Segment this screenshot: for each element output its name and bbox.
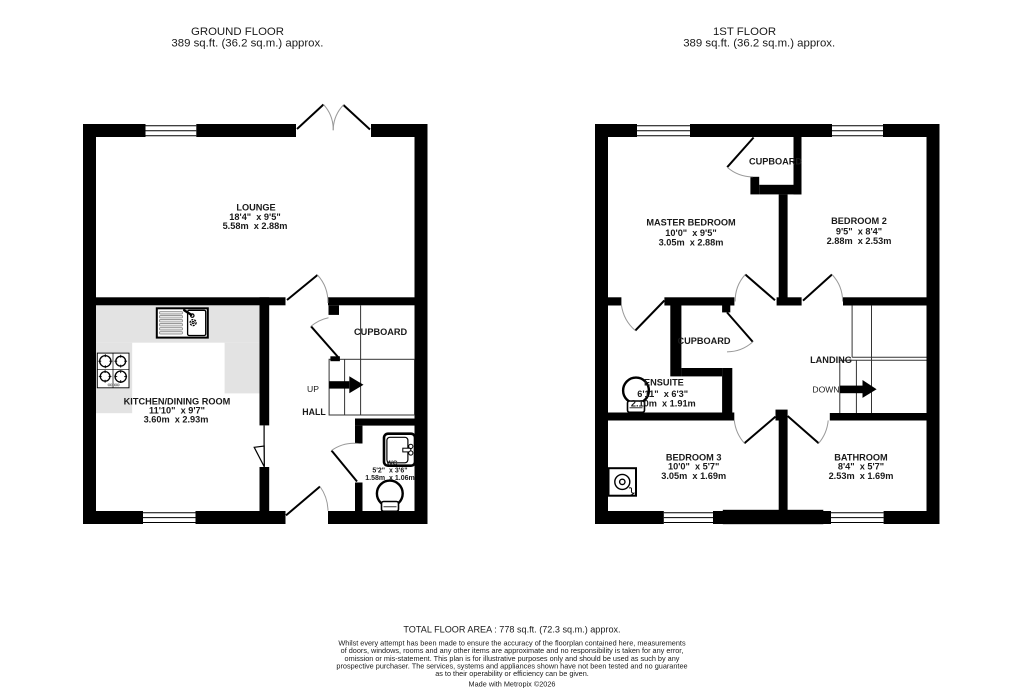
svg-text:CUPBOARD: CUPBOARD (749, 157, 802, 167)
svg-text:6'11" x 6'3": 6'11" x 6'3" (637, 389, 688, 399)
svg-text:TOTAL FLOOR AREA : 778 sq.ft.: TOTAL FLOOR AREA : 778 sq.ft. (72.3 sq.m… (403, 624, 620, 634)
svg-text:UP: UP (307, 384, 319, 394)
svg-text:WC: WC (387, 460, 398, 467)
svg-text:389 sq.ft. (36.2 sq.m.) approx: 389 sq.ft. (36.2 sq.m.) approx. (171, 38, 323, 50)
svg-text:1ST FLOOR: 1ST FLOOR (713, 26, 776, 38)
svg-text:5'2" x 3'6": 5'2" x 3'6" (372, 468, 407, 475)
svg-text:3.05m x 2.88m: 3.05m x 2.88m (659, 238, 724, 248)
svg-text:10'0" x 5'7": 10'0" x 5'7" (668, 462, 719, 472)
svg-text:8'4" x 5'7": 8'4" x 5'7" (838, 462, 884, 472)
svg-text:as to their operability or eff: as to their operability or efficiency ca… (435, 669, 589, 678)
svg-text:CUPBOARD: CUPBOARD (354, 327, 407, 337)
svg-text:DOWN: DOWN (812, 384, 839, 394)
svg-text:9'5" x 8'4": 9'5" x 8'4" (836, 227, 882, 237)
svg-text:389 sq.ft. (36.2 sq.m.) approx: 389 sq.ft. (36.2 sq.m.) approx. (683, 38, 835, 50)
svg-text:MASTER BEDROOM: MASTER BEDROOM (646, 218, 736, 228)
svg-text:Made with Metropix ©2026: Made with Metropix ©2026 (469, 680, 556, 688)
svg-text:BEDROOM 2: BEDROOM 2 (831, 216, 887, 226)
svg-text:HALL: HALL (302, 407, 326, 417)
svg-text:5.58m x 2.88m: 5.58m x 2.88m (223, 221, 288, 231)
svg-text:1.58m x 1.06m: 1.58m x 1.06m (365, 475, 414, 482)
svg-text:10'0" x 9'5": 10'0" x 9'5" (665, 228, 716, 238)
svg-text:GROUND FLOOR: GROUND FLOOR (191, 26, 284, 38)
svg-text:3.60m x 2.93m: 3.60m x 2.93m (144, 415, 209, 425)
svg-text:2.53m x 1.69m: 2.53m x 1.69m (829, 471, 894, 481)
svg-text:3.05m x 1.69m: 3.05m x 1.69m (661, 471, 726, 481)
svg-text:2.10m x 1.91m: 2.10m x 1.91m (631, 398, 696, 408)
svg-text:CUPBOARD: CUPBOARD (677, 336, 730, 346)
svg-text:LANDING: LANDING (810, 355, 852, 365)
svg-text:ENSUITE: ENSUITE (644, 377, 684, 387)
svg-text:2.88m x 2.53m: 2.88m x 2.53m (827, 236, 892, 246)
